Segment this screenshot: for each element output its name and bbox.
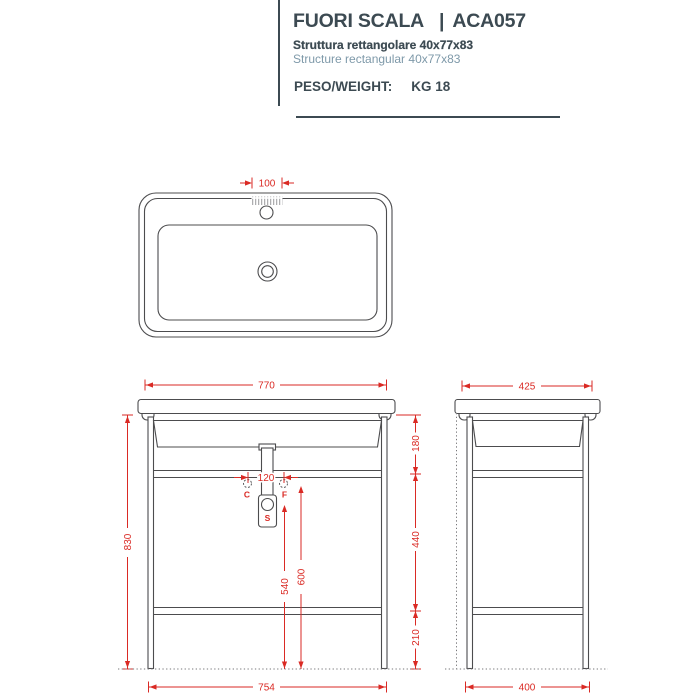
dim-label-754: 754 <box>258 683 275 694</box>
dim-faucet-zone-width: 100 <box>240 178 294 190</box>
dim-height-total: 830 <box>122 415 134 669</box>
lower-rail <box>154 608 382 615</box>
dim-depth-top: 425 <box>462 381 592 393</box>
label-hot: F <box>282 490 287 500</box>
dim-label-100: 100 <box>259 179 276 190</box>
dim-depth-bottom: 400 <box>466 682 590 694</box>
faucet-mounting-zone <box>252 197 283 206</box>
upper-rail-side <box>473 471 584 478</box>
leg-right <box>382 417 388 669</box>
datasheet-page: FUORI SCALA | ACA057 Struttura rettangol… <box>0 0 700 700</box>
label-siphon: S <box>265 513 271 523</box>
dim-siphon-height: 540 <box>280 505 291 669</box>
faucet-hole <box>260 206 273 219</box>
dim-hole-spacing: 120 <box>234 472 298 484</box>
dim-width-bottom: 754 <box>149 682 387 694</box>
dim-label-770: 770 <box>258 381 275 392</box>
technical-drawing: 100 770 <box>0 0 700 700</box>
lower-rail-side <box>473 608 584 615</box>
front-view: 770 <box>118 380 422 694</box>
label-cold: C <box>244 490 250 500</box>
dim-label-600: 600 <box>297 568 308 585</box>
leg-left <box>148 417 154 669</box>
dim-section-chain: 180 440 210 <box>396 415 422 669</box>
dim-label-210: 210 <box>411 629 422 646</box>
side-view: 425 <box>445 381 608 694</box>
dim-label-400: 400 <box>519 683 536 694</box>
dim-supply-height: 600 <box>297 486 308 669</box>
dim-label-540: 540 <box>280 578 291 595</box>
dim-label-440: 440 <box>411 531 422 548</box>
basin-apron <box>154 421 382 448</box>
dim-label-830: 830 <box>123 533 134 550</box>
top-view: 100 <box>139 178 392 338</box>
washbasin-top-side <box>455 400 600 414</box>
dim-width-top: 770 <box>145 380 387 392</box>
dim-label-180: 180 <box>411 435 422 452</box>
washbasin-top <box>138 400 395 414</box>
leg-front <box>467 417 473 669</box>
dim-label-425: 425 <box>519 382 536 393</box>
basin-apron-side <box>473 421 584 447</box>
drain-pipe <box>262 448 274 495</box>
dim-label-120: 120 <box>258 473 275 484</box>
leg-back <box>583 417 589 669</box>
